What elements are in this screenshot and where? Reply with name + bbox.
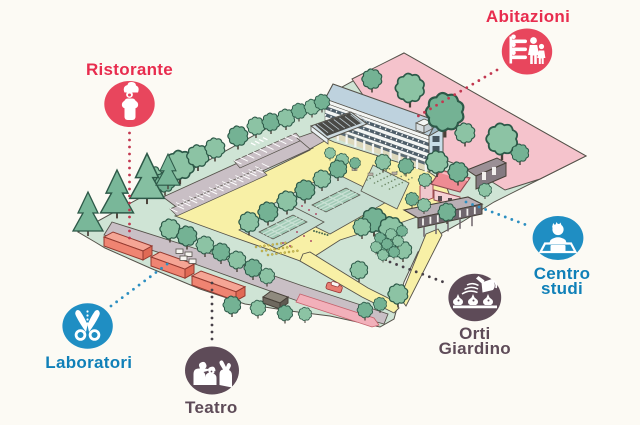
svg-text:Abitazioni: Abitazioni	[486, 7, 570, 26]
svg-text:Laboratori: Laboratori	[45, 353, 132, 372]
svg-text:studi: studi	[541, 279, 583, 298]
svg-text:Teatro: Teatro	[185, 398, 238, 417]
svg-text:Giardino: Giardino	[439, 339, 511, 358]
svg-text:Ristorante: Ristorante	[86, 60, 173, 79]
